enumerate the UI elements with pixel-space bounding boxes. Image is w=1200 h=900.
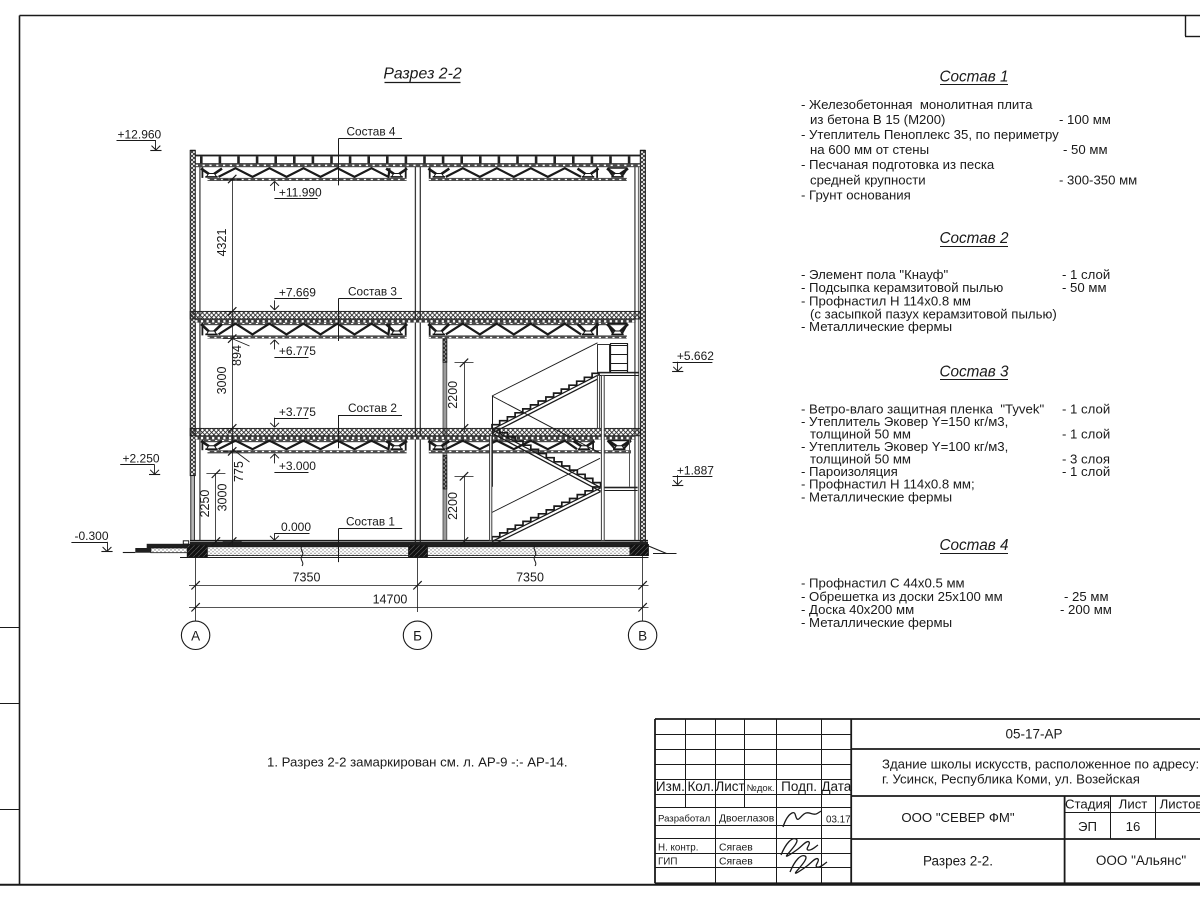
svg-text:+3.775: +3.775 bbox=[279, 405, 316, 419]
svg-text:из бетона В 15 (М200): из бетона В 15 (М200) bbox=[810, 112, 945, 127]
svg-text:3000: 3000 bbox=[215, 367, 229, 395]
svg-text:ООО "Альянс": ООО "Альянс" bbox=[1096, 853, 1186, 868]
svg-text:- Металлические фермы: - Металлические фермы bbox=[801, 615, 952, 630]
svg-text:на 600 мм от стены: на 600 мм от стены bbox=[810, 142, 929, 157]
svg-text:Лист: Лист bbox=[1119, 797, 1148, 812]
svg-text:Разрез 2-2: Разрез 2-2 bbox=[383, 66, 461, 83]
svg-text:Сягаев: Сягаев bbox=[719, 857, 753, 868]
svg-text:- Грунт основания: - Грунт основания bbox=[801, 188, 911, 203]
svg-text:Состав 3: Состав 3 bbox=[348, 285, 397, 299]
svg-text:Разрез 2-2.: Разрез 2-2. bbox=[923, 854, 993, 869]
svg-text:2200: 2200 bbox=[446, 492, 460, 520]
svg-text:Н. контр.: Н. контр. bbox=[658, 843, 698, 854]
svg-text:+12.960: +12.960 bbox=[118, 127, 162, 141]
svg-text:Состав 2: Состав 2 bbox=[348, 401, 397, 415]
svg-text:Сягаев: Сягаев bbox=[719, 843, 753, 854]
svg-text:+1.887: +1.887 bbox=[677, 463, 714, 477]
svg-text:- 1 слой: - 1 слой bbox=[1062, 427, 1110, 442]
svg-text:ГИП: ГИП bbox=[658, 857, 677, 868]
svg-text:№док.: №док. bbox=[747, 783, 775, 794]
svg-text:- Утеплитель Пеноплекс 35, по: - Утеплитель Пеноплекс 35, по периметру bbox=[801, 127, 1059, 142]
svg-text:Состав 4: Состав 4 bbox=[347, 125, 396, 139]
svg-text:Состав 1: Состав 1 bbox=[346, 515, 395, 529]
svg-text:-0.300: -0.300 bbox=[75, 529, 109, 543]
svg-text:3000: 3000 bbox=[215, 484, 229, 512]
svg-text:- 50 мм: - 50 мм bbox=[1062, 280, 1107, 295]
svg-text:Кол.: Кол. bbox=[687, 779, 714, 794]
svg-text:г. Усинск, Республика Коми, ул: г. Усинск, Республика Коми, ул. Возейска… bbox=[882, 772, 1140, 787]
svg-text:Состав 4: Состав 4 bbox=[939, 537, 1008, 554]
svg-text:средней крупности: средней крупности bbox=[810, 173, 926, 188]
svg-text:Двоеглазов: Двоеглазов bbox=[719, 814, 775, 825]
svg-text:- 1 слой: - 1 слой bbox=[1062, 464, 1110, 479]
svg-text:+11.990: +11.990 bbox=[279, 186, 322, 200]
svg-text:- 50 мм: - 50 мм bbox=[1063, 142, 1108, 157]
svg-text:+3.000: +3.000 bbox=[279, 459, 316, 473]
svg-text:Лист: Лист bbox=[715, 779, 744, 794]
svg-text:Изм.: Изм. bbox=[656, 779, 685, 794]
svg-text:- 200 мм: - 200 мм bbox=[1060, 602, 1112, 617]
svg-text:2200: 2200 bbox=[446, 381, 460, 409]
svg-text:Состав 3: Состав 3 bbox=[939, 364, 1009, 381]
svg-text:7350: 7350 bbox=[516, 570, 544, 584]
svg-text:- 100 мм: - 100 мм bbox=[1059, 112, 1111, 127]
svg-text:Состав 2: Состав 2 bbox=[939, 230, 1009, 247]
svg-text:+2.250: +2.250 bbox=[123, 451, 160, 465]
svg-text:Разработал: Разработал bbox=[658, 814, 710, 825]
svg-text:894: 894 bbox=[230, 345, 244, 366]
svg-text:2250: 2250 bbox=[198, 490, 212, 518]
svg-text:В: В bbox=[638, 628, 647, 643]
svg-text:14700: 14700 bbox=[373, 592, 408, 606]
svg-text:0.000: 0.000 bbox=[281, 520, 311, 534]
svg-text:16: 16 bbox=[1126, 819, 1141, 834]
svg-text:- 1 слой: - 1 слой bbox=[1062, 402, 1110, 417]
svg-text:Б: Б bbox=[413, 628, 422, 643]
svg-text:+7.669: +7.669 bbox=[279, 286, 316, 300]
svg-text:Дата: Дата bbox=[821, 779, 851, 794]
svg-text:Листов: Листов bbox=[1160, 797, 1200, 812]
svg-text:1. Разрез 2-2 замаркирован см.: 1. Разрез 2-2 замаркирован см. л. АР-9 -… bbox=[267, 755, 568, 770]
svg-text:- 300-350 мм: - 300-350 мм bbox=[1059, 173, 1137, 188]
svg-text:- Железобетонная монолитная п: - Железобетонная монолитная плита bbox=[801, 97, 1033, 112]
svg-text:Стадия: Стадия bbox=[1065, 797, 1110, 812]
svg-text:ЭП: ЭП bbox=[1078, 819, 1097, 834]
svg-text:- Металлические фермы: - Металлические фермы bbox=[801, 490, 952, 505]
svg-text:А: А bbox=[191, 628, 200, 643]
svg-text:- Песчаная подготовка из песка: - Песчаная подготовка из песка bbox=[801, 157, 995, 172]
svg-text:ООО "СЕВЕР ФМ": ООО "СЕВЕР ФМ" bbox=[901, 810, 1015, 825]
svg-text:+6.775: +6.775 bbox=[279, 344, 316, 358]
svg-text:7350: 7350 bbox=[293, 570, 321, 584]
svg-text:775: 775 bbox=[232, 461, 246, 482]
svg-text:+5.662: +5.662 bbox=[677, 349, 714, 363]
svg-text:Здание школы искусств, располо: Здание школы искусств, расположенное по … bbox=[882, 757, 1199, 772]
svg-text:03.17: 03.17 bbox=[826, 815, 851, 826]
svg-text:Подп.: Подп. bbox=[781, 779, 817, 794]
svg-text:05-17-АР: 05-17-АР bbox=[1005, 727, 1062, 742]
svg-text:- Металлические фермы: - Металлические фермы bbox=[801, 319, 952, 334]
svg-text:Состав 1: Состав 1 bbox=[939, 69, 1008, 86]
svg-text:4321: 4321 bbox=[215, 229, 229, 257]
